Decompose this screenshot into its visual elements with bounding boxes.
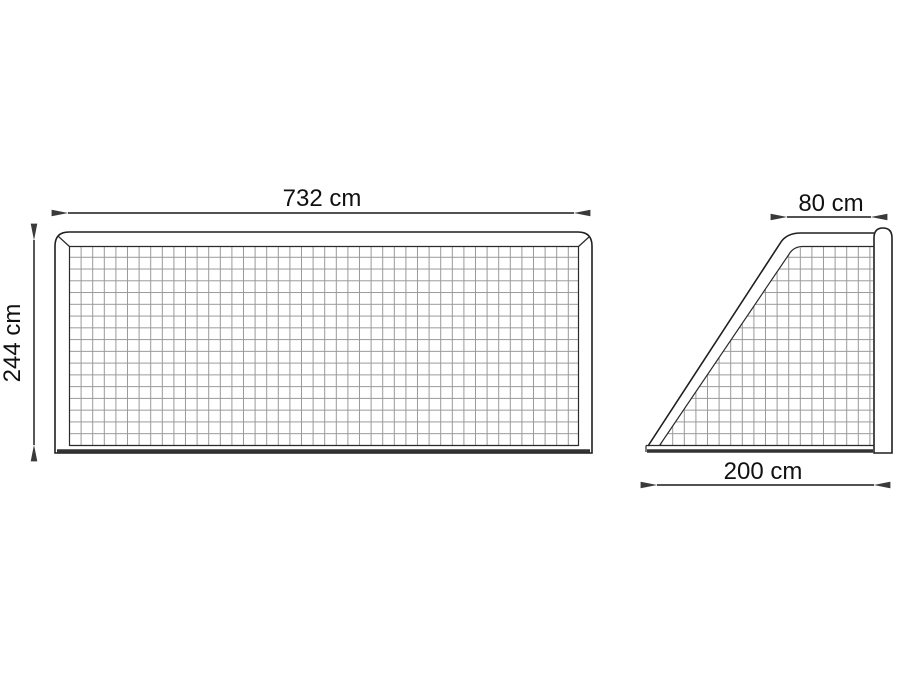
side-depth-bottom-dimension-label: 200 cm: [724, 458, 803, 485]
front-height-dimension-label: 244 cm: [0, 304, 26, 383]
front-width-dimension-label: 732 cm: [283, 185, 362, 212]
diagram-canvas: 732 cm 244 cm 80 cm: [0, 0, 900, 675]
side-depth-top-dimension-label: 80 cm: [798, 190, 863, 217]
front-net: [70, 246, 578, 446]
side-depth-top-dimension: 80 cm: [787, 190, 871, 217]
goal-dimension-diagram: 732 cm 244 cm 80 cm: [0, 0, 900, 675]
